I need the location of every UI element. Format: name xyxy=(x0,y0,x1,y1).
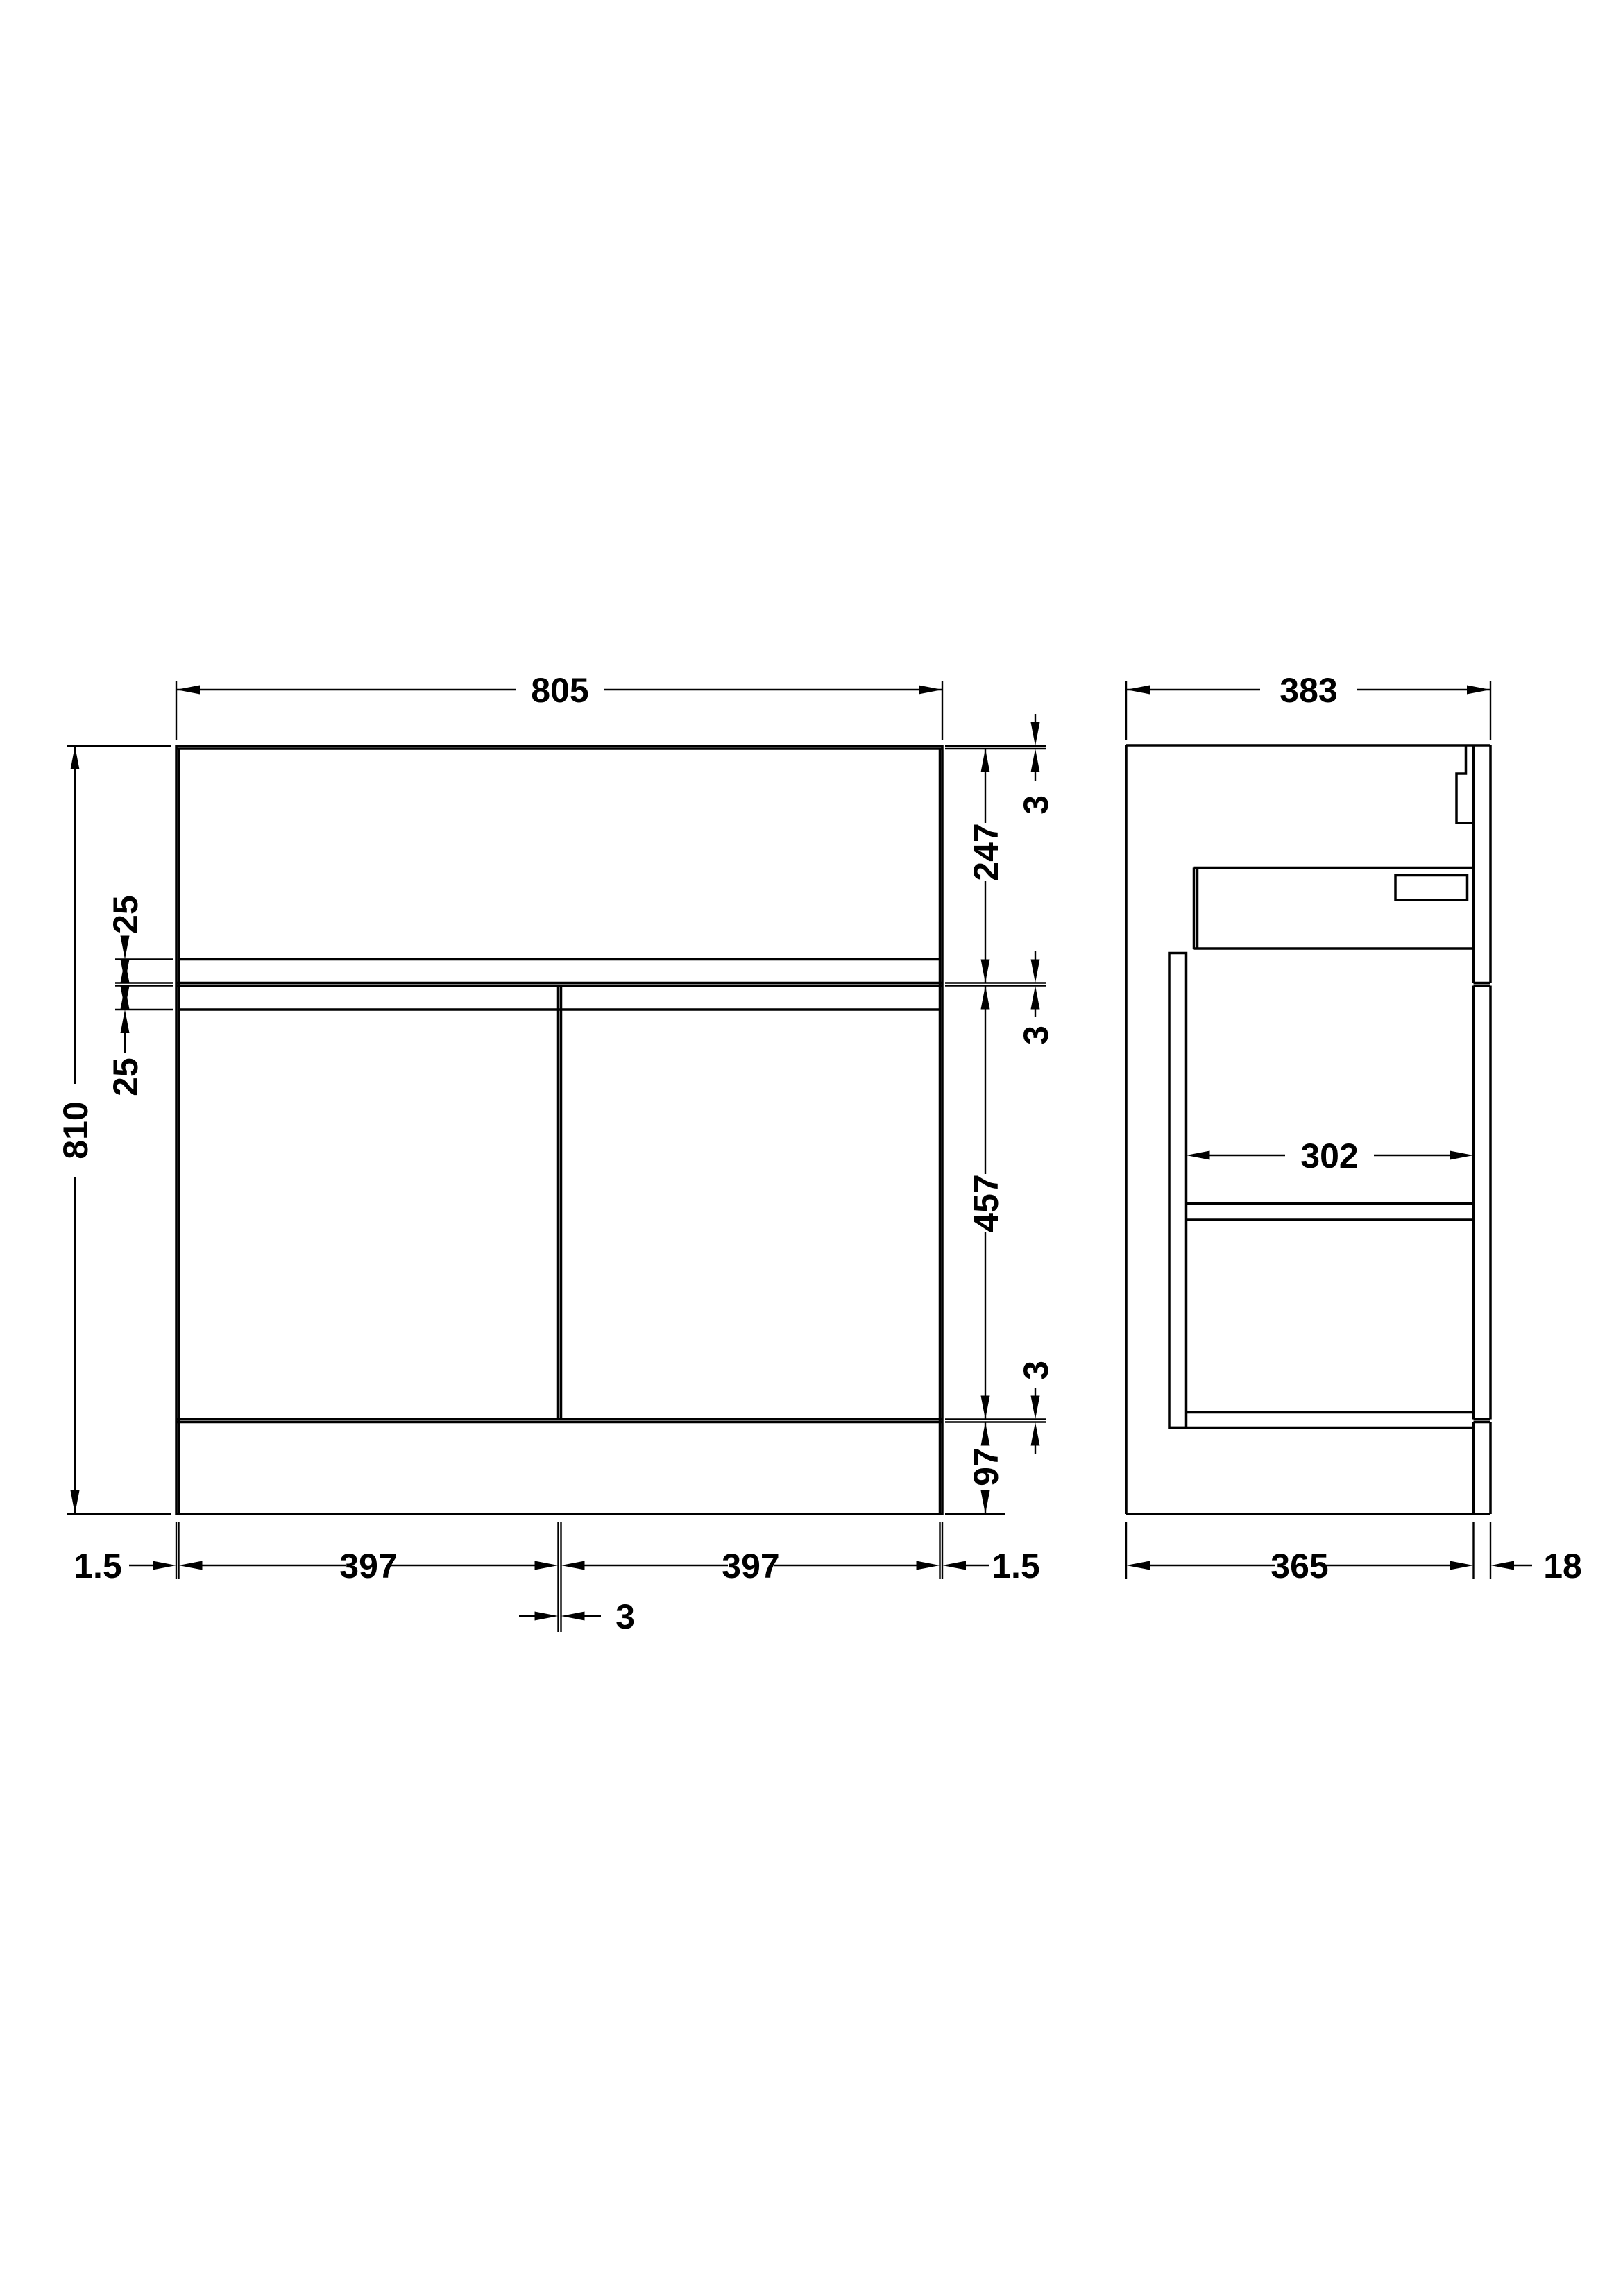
side-overflow-slot xyxy=(1395,876,1468,901)
dim-side-internal-depth: 302 xyxy=(1187,1137,1474,1175)
dim-label-plinth: 97 xyxy=(967,1447,1005,1486)
dim-front-worktop-edge: 3 xyxy=(1017,714,1055,815)
dim-side-overall-depth: 383 xyxy=(1126,671,1490,740)
dim-label-front-height: 810 xyxy=(56,1101,95,1159)
dim-front-overall-height: 810 xyxy=(56,746,171,1514)
front-view xyxy=(176,746,942,1514)
dim-label-left-door-width: 397 xyxy=(339,1547,397,1585)
dim-front-overall-width: 805 xyxy=(176,671,942,740)
dim-label-left-side-gap: 1.5 xyxy=(74,1547,122,1585)
side-rebate-notch xyxy=(1456,745,1474,823)
side-view xyxy=(1126,745,1490,1514)
dim-front-grooves: 25 25 xyxy=(106,895,173,1096)
dim-label-panel-thickness: 18 xyxy=(1543,1547,1582,1585)
dim-label-groove-below: 25 xyxy=(106,1057,145,1096)
dim-label-lower-joint: 3 xyxy=(1017,1361,1055,1380)
drawing-canvas: 805 383 810 25 25 xyxy=(0,0,1623,2296)
dim-label-upper-panel: 247 xyxy=(967,823,1005,881)
dim-label-carcass-depth: 365 xyxy=(1271,1547,1328,1585)
dim-front-upper-joint: 3 xyxy=(1017,951,1055,1045)
dim-front-plinth: 97 xyxy=(967,1422,1005,1515)
dim-label-side-depth: 383 xyxy=(1280,671,1337,710)
dim-label-front-width: 805 xyxy=(531,671,588,710)
vanity-unit-technical-drawing: 805 383 810 25 25 xyxy=(0,0,1623,2296)
dim-label-upper-joint: 3 xyxy=(1017,1026,1055,1045)
dim-label-internal-depth: 302 xyxy=(1300,1137,1358,1175)
dim-front-lower-joint: 3 xyxy=(1017,1361,1055,1454)
dim-label-center-door-gap: 3 xyxy=(615,1597,635,1636)
dim-front-upper-panel: 247 xyxy=(967,749,1005,983)
dim-front-door-height: 457 xyxy=(967,986,1005,1420)
side-back-panel xyxy=(1169,953,1187,1428)
dim-front-bottom-chain: 1.5 397 397 1.5 3 xyxy=(74,1522,1040,1636)
dim-label-groove-above: 25 xyxy=(106,895,145,934)
dim-label-worktop-edge: 3 xyxy=(1017,795,1055,815)
dim-label-right-side-gap: 1.5 xyxy=(992,1547,1040,1585)
dim-label-right-door-width: 397 xyxy=(722,1547,779,1585)
dim-side-bottom-chain: 365 18 xyxy=(1126,1522,1582,1585)
dim-label-door-height: 457 xyxy=(967,1174,1005,1232)
